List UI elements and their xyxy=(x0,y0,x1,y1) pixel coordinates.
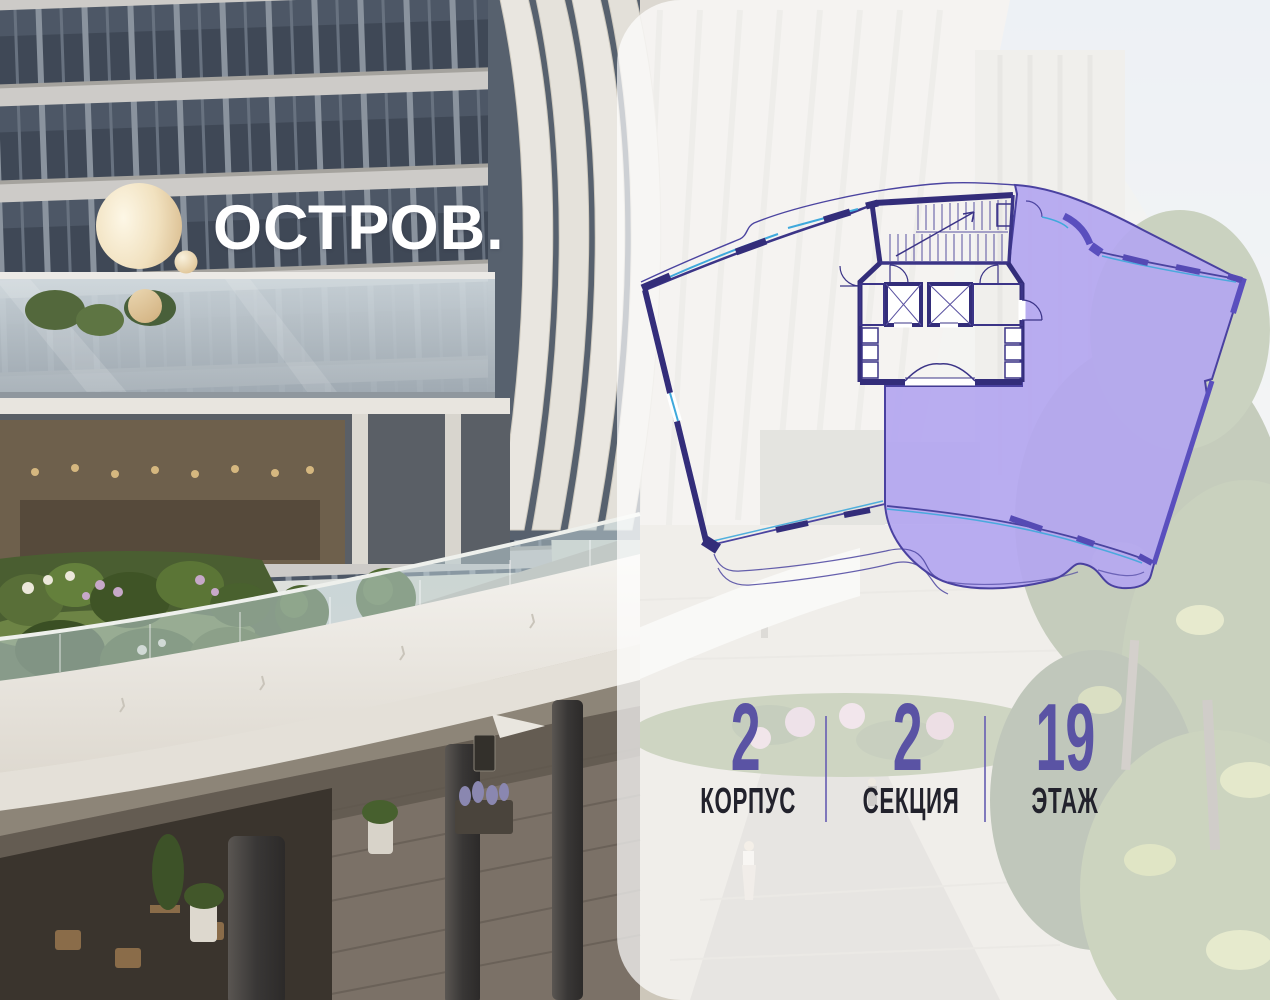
stat-building-label: КОРПУС xyxy=(700,784,796,818)
stat-section-label: СЕКЦИЯ xyxy=(863,784,960,818)
stat-floor-label: ЭТАЖ xyxy=(1032,784,1099,818)
stat-section: 2 СЕКЦИЯ xyxy=(833,700,983,818)
ground-colonnade xyxy=(0,398,510,564)
stat-divider xyxy=(825,716,827,822)
stat-floor-value: 19 xyxy=(1035,700,1095,776)
stat-building: 2 КОРПУС xyxy=(671,700,821,818)
promo-card: ОСТРОВ. xyxy=(0,0,1270,1000)
floor-plan-core xyxy=(840,195,1042,386)
balcony-glass-band xyxy=(0,272,495,398)
stat-divider xyxy=(984,716,986,822)
floor-plan xyxy=(628,168,1270,612)
stat-floor: 19 ЭТАЖ xyxy=(990,700,1140,818)
stat-section-value: 2 xyxy=(893,700,923,776)
stat-building-value: 2 xyxy=(731,700,761,776)
brand-logo-text: ОСТРОВ. xyxy=(213,192,505,264)
floor-plan-selected-wing[interactable] xyxy=(885,185,1243,588)
